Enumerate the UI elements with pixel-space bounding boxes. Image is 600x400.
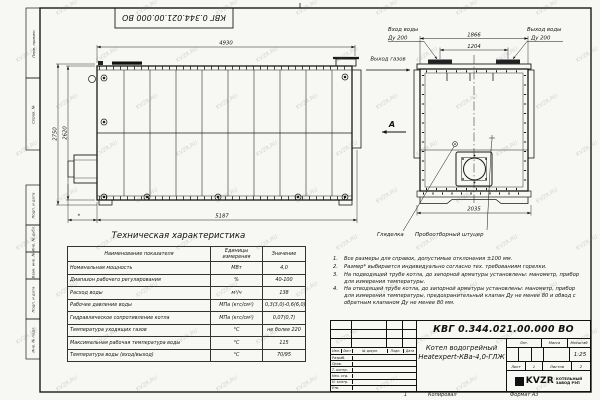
sheets-value: 2 bbox=[572, 362, 590, 370]
sheets-label: Листов bbox=[543, 362, 572, 370]
format-label: Формат А3 bbox=[510, 392, 538, 398]
note-item: 1.Все размеры для справок, допустимые от… bbox=[333, 256, 583, 263]
notes-list: 1.Все размеры для справок, допустимые от… bbox=[333, 256, 583, 308]
table-row: Рабочее давление водыМПа (кгс/см²)0,3(3,… bbox=[68, 299, 306, 312]
margin-label-podp-data-2: Подп. и дата bbox=[26, 279, 40, 319]
sig-header-row: Изм. Лист № докум. Подп. Дата bbox=[331, 348, 416, 355]
dim-length-bottom: 5187 bbox=[215, 214, 229, 220]
bolt-symbols bbox=[101, 74, 348, 200]
dim-width-flanges: 1866 bbox=[467, 33, 481, 39]
margin-label-sprav-no: Справ. № bbox=[26, 78, 40, 150]
table-row: Температура воды (вход/выход)°С70/95 bbox=[68, 349, 306, 362]
burner-box bbox=[68, 155, 97, 183]
dim-base-width: 2035 bbox=[467, 207, 481, 213]
dim-burner-asterisk: * bbox=[78, 214, 81, 220]
table-row: Гидравлическое сопротивление котлаМПа (к… bbox=[68, 312, 306, 325]
doc-number: КВГ 0.344.021.00.000 ВО bbox=[417, 321, 590, 339]
dim-nozzle-spacing: 1204 bbox=[467, 44, 480, 50]
top-rail bbox=[112, 62, 142, 65]
front-view bbox=[414, 55, 534, 204]
table-row: Максимальная рабочая температура воды°С1… bbox=[68, 337, 306, 350]
water-in-leader bbox=[424, 42, 437, 60]
water-in-label: Вход воды bbox=[388, 27, 419, 33]
logo-text: KVZR bbox=[526, 376, 554, 386]
scale-label: Масштаб bbox=[568, 339, 590, 347]
note-item: 3.На подводящей трубе котла, до запорной… bbox=[333, 272, 583, 286]
spec-table: Наименование показателя Единицы измерени… bbox=[67, 246, 306, 362]
copied-label: Копировал bbox=[428, 392, 457, 398]
gas-out-label: Выход газов bbox=[370, 57, 405, 63]
zone-number: 1 bbox=[404, 392, 407, 398]
spec-table-title: Техническая характеристика bbox=[67, 231, 290, 241]
peephole-label: Гляделка bbox=[377, 232, 404, 238]
sig-row: Утв. bbox=[331, 386, 416, 391]
col-units-header: Единицы измерения bbox=[211, 247, 263, 262]
water-in-dn: Ду 200 bbox=[387, 36, 408, 42]
title-block: Изм. Лист № докум. Подп. Дата Разраб. Пр… bbox=[330, 320, 591, 392]
table-row: Диапазон рабочего регулирования%40-100 bbox=[68, 274, 306, 287]
logo-square-icon bbox=[515, 377, 524, 386]
side-view bbox=[68, 58, 361, 205]
col-name-header: Наименование показателя bbox=[68, 247, 211, 262]
lifting-lug bbox=[98, 61, 103, 65]
side-boss bbox=[89, 76, 96, 83]
top-stamp: КВГ 0.344.021.00.000 ВО bbox=[115, 8, 233, 28]
dim-height-outer: 2750 bbox=[53, 127, 59, 141]
foot-left bbox=[99, 200, 112, 205]
margin-label-podp-data-1: Подп. и дата bbox=[26, 185, 40, 225]
col-value-header: Значение bbox=[263, 247, 306, 262]
water-out-label: Выход воды bbox=[527, 27, 562, 33]
sheet-value: 1 bbox=[526, 362, 543, 370]
margin-label-inv-dubl: Инв. № дубл. bbox=[26, 225, 40, 252]
mass-label: Масса bbox=[542, 339, 568, 347]
dim-length-top: 4930 bbox=[219, 41, 233, 47]
gas-outlet-stub bbox=[333, 58, 361, 148]
table-row: Температура уходящих газов°Сне более 220 bbox=[68, 324, 306, 337]
sampling-symbol bbox=[489, 135, 495, 141]
margin-label-perv-primen: Перв. примен. bbox=[26, 8, 40, 78]
water-inlet-nozzle bbox=[428, 60, 452, 64]
dim-height-inner: 2620 bbox=[63, 126, 69, 140]
sheet-label: Лист bbox=[507, 362, 526, 370]
margin-label-inv-podl: Инв. № подл. bbox=[26, 319, 40, 359]
foot-right bbox=[339, 200, 352, 205]
drawing-sheet: 4930 2750 2620 5187 * Выход газов А bbox=[0, 0, 600, 400]
water-out-leader bbox=[513, 42, 527, 60]
factory-logo: KVZR КОТЕЛЬНЫЙ ЗАВОД РЭП bbox=[507, 371, 590, 391]
table-row: Номинальная мощностьМВт4,0 bbox=[68, 262, 306, 275]
lit-label: Лит. bbox=[507, 339, 542, 347]
note-item: 2.Размер* выбирается индивидуально согла… bbox=[333, 264, 583, 271]
water-outlet-nozzle bbox=[496, 60, 520, 64]
margin-label-vzam-inv: Взам. инв. № bbox=[26, 252, 40, 279]
water-out-dn: Ду 200 bbox=[530, 36, 551, 42]
sampling-label: Пробоотборный штуцер bbox=[415, 232, 484, 238]
spec-header-row: Наименование показателя Единицы измерени… bbox=[68, 247, 306, 262]
product-name: Котел водогрейный Heatexpert-КВа-4,0-ГЛЖ bbox=[417, 339, 507, 391]
scale-value: 1:25 bbox=[570, 348, 590, 361]
note-item: 4.На отводящей трубе котла, до запорной … bbox=[333, 286, 583, 307]
view-a-label: А bbox=[388, 120, 395, 129]
title-block-signatures: Изм. Лист № докум. Подп. Дата Разраб. Пр… bbox=[331, 321, 417, 391]
table-row: Расход водым³/ч138 bbox=[68, 287, 306, 300]
